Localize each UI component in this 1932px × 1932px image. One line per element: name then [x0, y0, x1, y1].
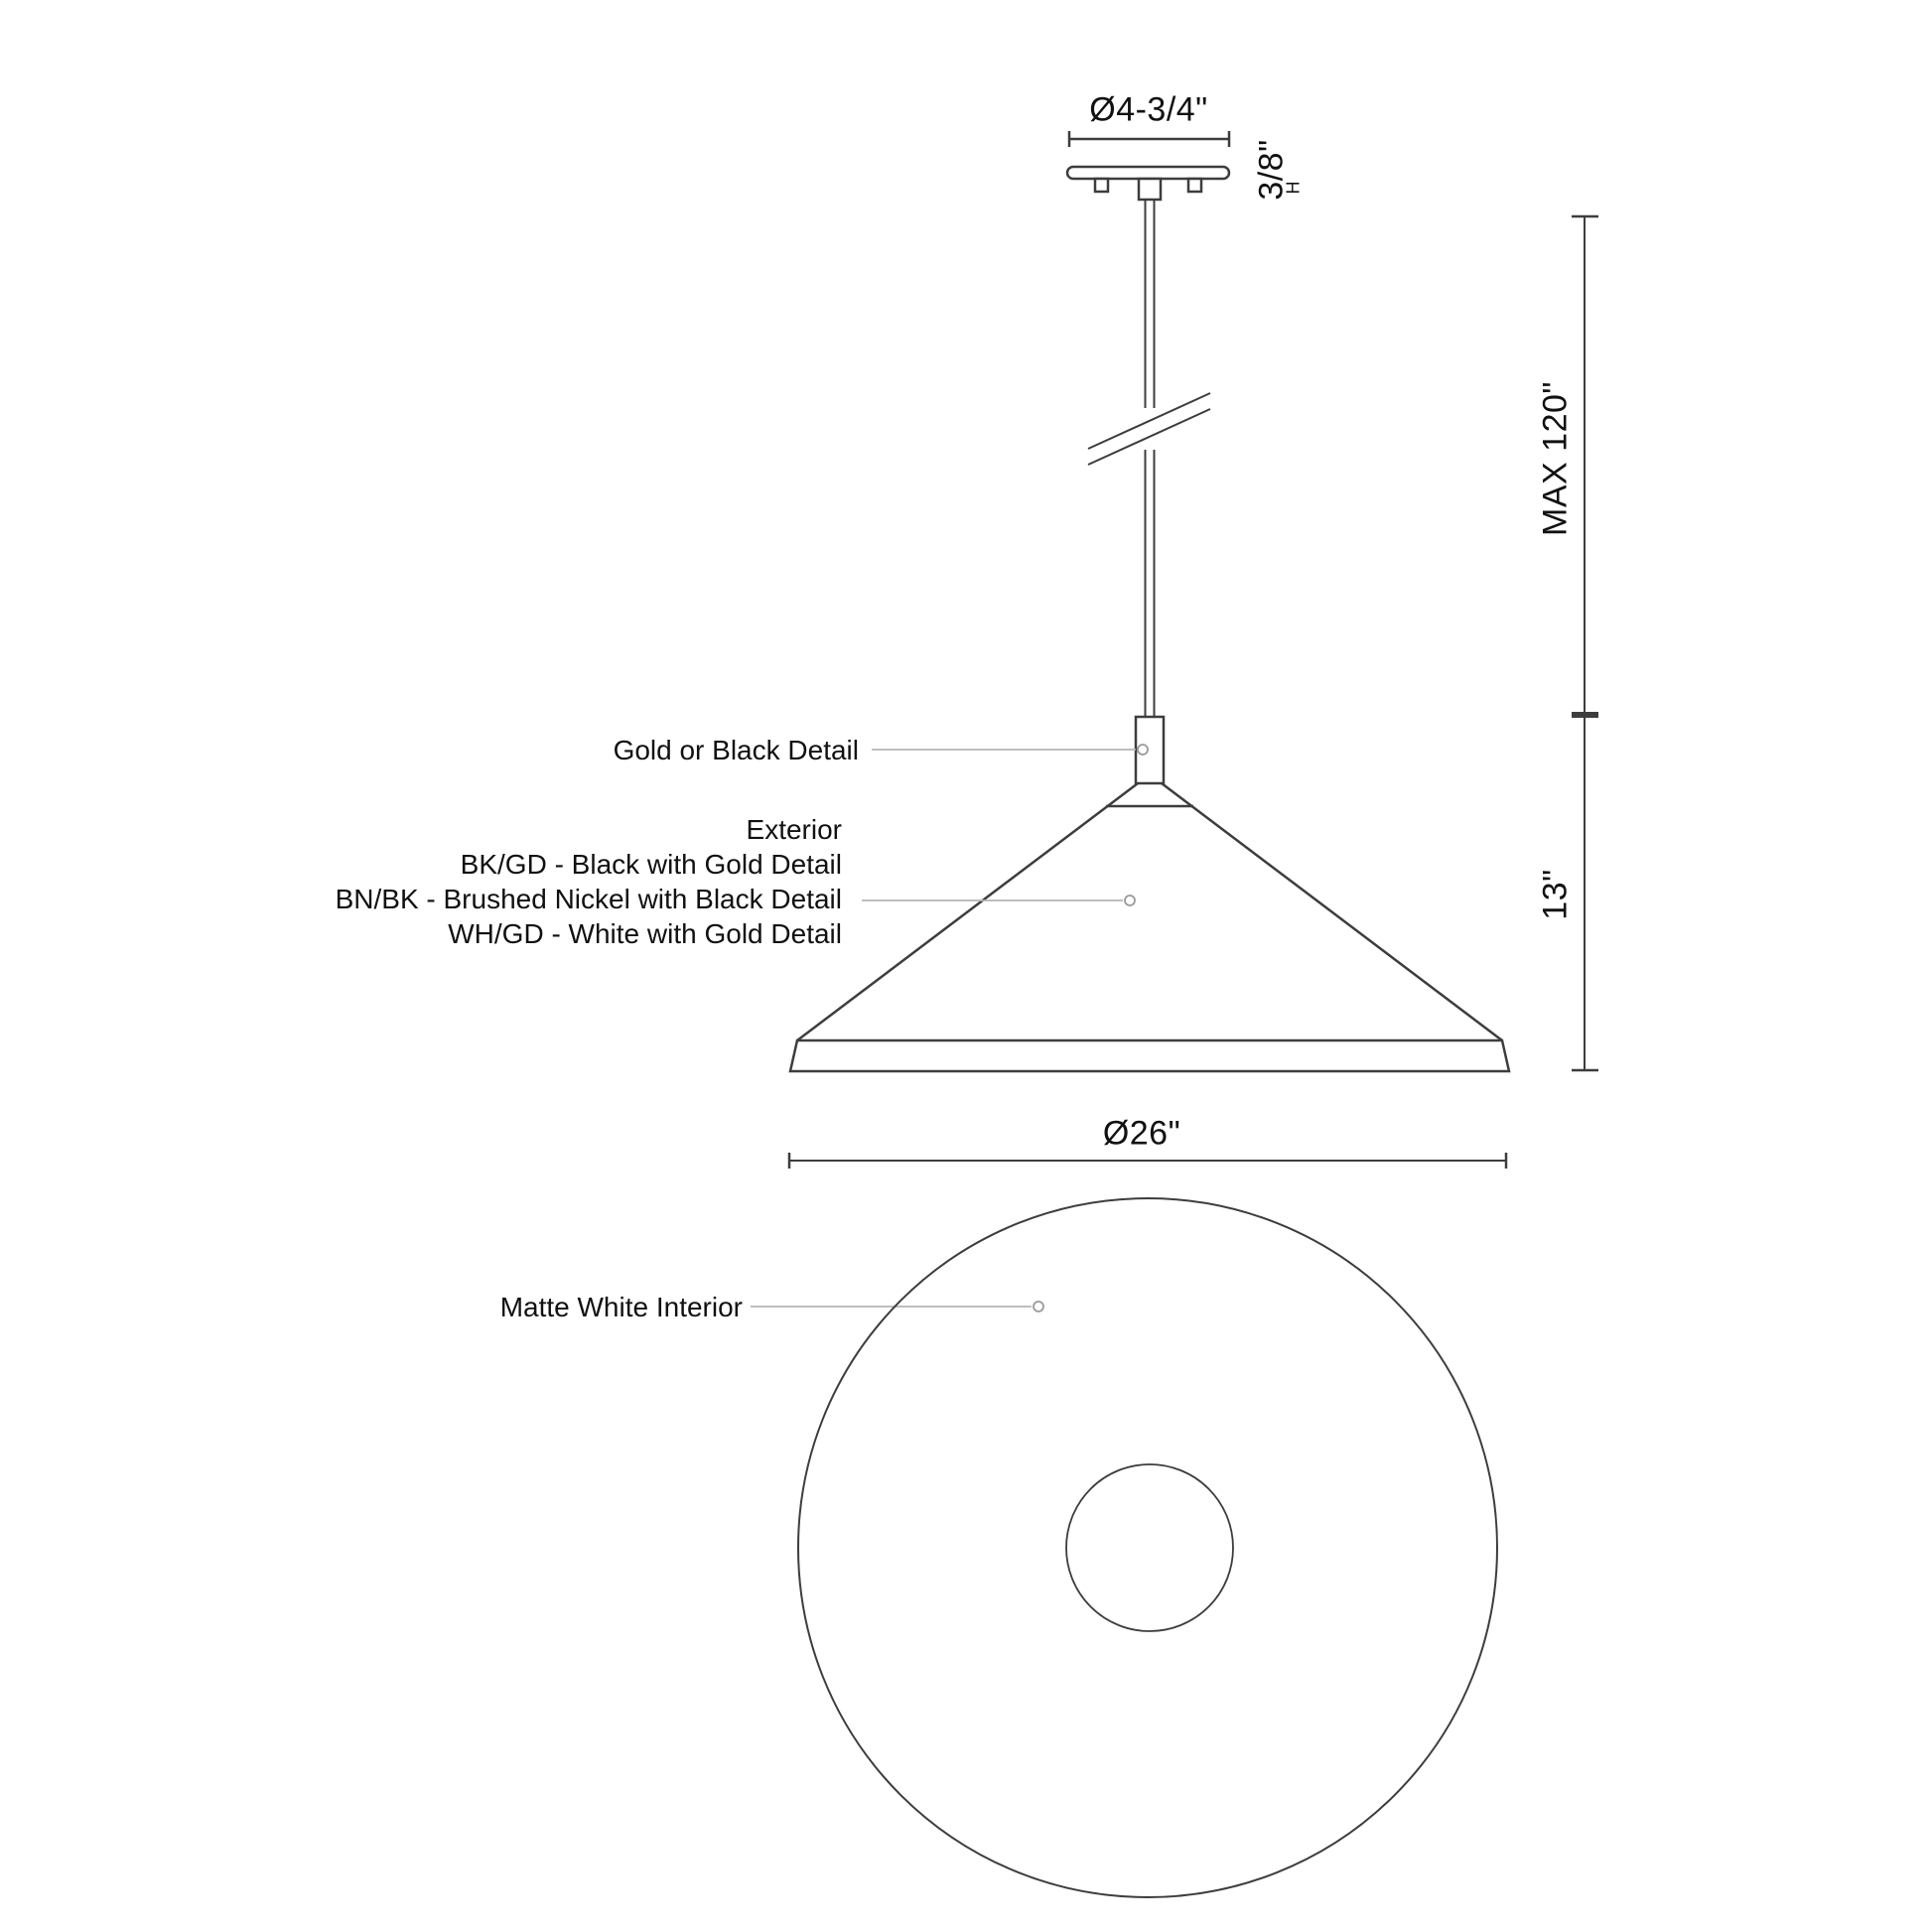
exterior-heading: Exterior: [216, 812, 842, 847]
exterior-finish-label-block: Exterior BK/GD - Black with Gold Detail …: [216, 812, 842, 951]
canopy-diameter-dimension-text: Ø4-3/4": [1089, 91, 1208, 130]
leader-dot-stem-detail: [1138, 745, 1148, 755]
leader-dot-exterior: [1125, 896, 1135, 905]
shade-center-hole-circle: [1066, 1464, 1233, 1631]
shade-diameter-dimension: [789, 1153, 1506, 1169]
stem-detail-label: Gold or Black Detail: [362, 735, 859, 766]
exterior-option-wh-gd: WH/GD - White with Gold Detail: [216, 916, 842, 951]
right-dimension-lines: [1572, 216, 1598, 1070]
shade-diameter-dimension-text: Ø26": [1103, 1115, 1180, 1154]
shade-cone: [790, 783, 1509, 1071]
suspension-rod: [1088, 200, 1210, 717]
cone-right-edge: [1162, 783, 1502, 1040]
exterior-option-bn-bk: BN/BK - Brushed Nickel with Black Detail: [216, 882, 842, 916]
interior-finish-label: Matte White Interior: [345, 1292, 743, 1323]
shade-rim-band: [790, 1040, 1509, 1071]
canopy-stem-block: [1139, 179, 1161, 200]
canopy-screw-right: [1188, 179, 1201, 192]
canopy-diameter-dimension: [1069, 131, 1229, 147]
leader-dot-interior: [1034, 1302, 1043, 1311]
canopy-screw-left: [1095, 179, 1108, 192]
line-drawing: [0, 0, 1932, 1932]
shade-outer-circle: [798, 1198, 1497, 1897]
shade-height-dimension-text: 13": [1537, 869, 1576, 919]
dimension-drawing-page: Ø4-3/4" 3/8" H MAX 120" 13" Ø26" Gold or…: [0, 0, 1932, 1932]
canopy-plate: [1067, 167, 1229, 179]
rod-break-mark-lower: [1088, 409, 1210, 465]
shade-bottom-view: [798, 1198, 1497, 1897]
max-suspension-dimension-text: MAX 120": [1537, 381, 1576, 536]
cone-left-edge: [797, 783, 1138, 1040]
canopy-height-marker-text: H: [1284, 182, 1305, 195]
exterior-option-bk-gd: BK/GD - Black with Gold Detail: [216, 847, 842, 882]
rod-break-mark-upper: [1088, 393, 1210, 449]
ceiling-canopy: [1067, 167, 1229, 200]
